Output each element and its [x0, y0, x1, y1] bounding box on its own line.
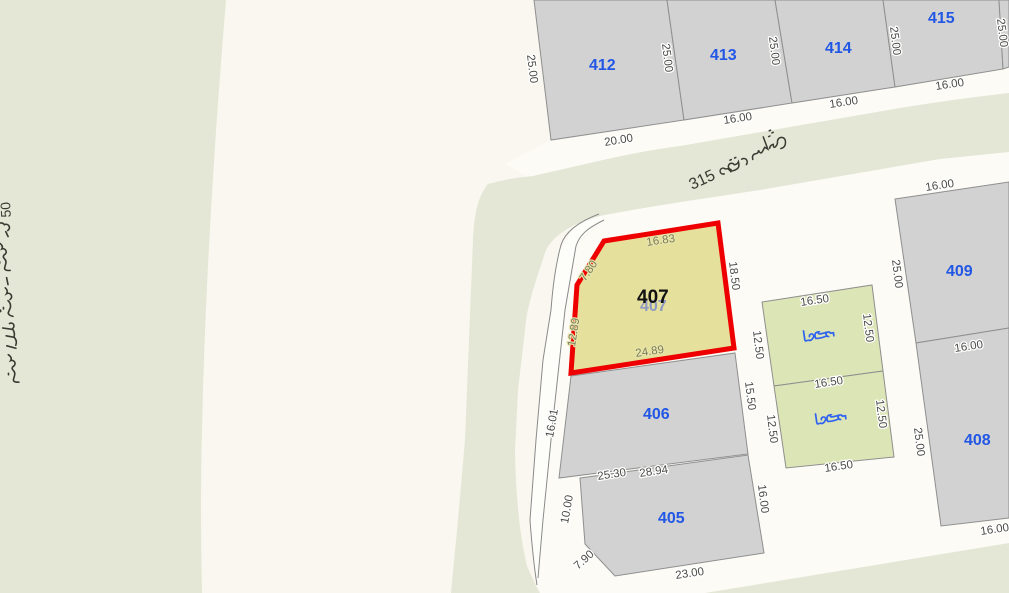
svg-text:406: 406: [643, 406, 670, 423]
svg-text:415: 415: [928, 10, 955, 27]
svg-text:414: 414: [825, 40, 852, 57]
svg-text:412: 412: [589, 57, 616, 74]
svg-text:50: 50: [0, 201, 14, 218]
svg-text:407: 407: [637, 287, 669, 308]
svg-text:408: 408: [964, 432, 991, 449]
svg-text:405: 405: [658, 510, 685, 527]
svg-text:409: 409: [946, 263, 973, 280]
svg-text:413: 413: [710, 47, 737, 64]
